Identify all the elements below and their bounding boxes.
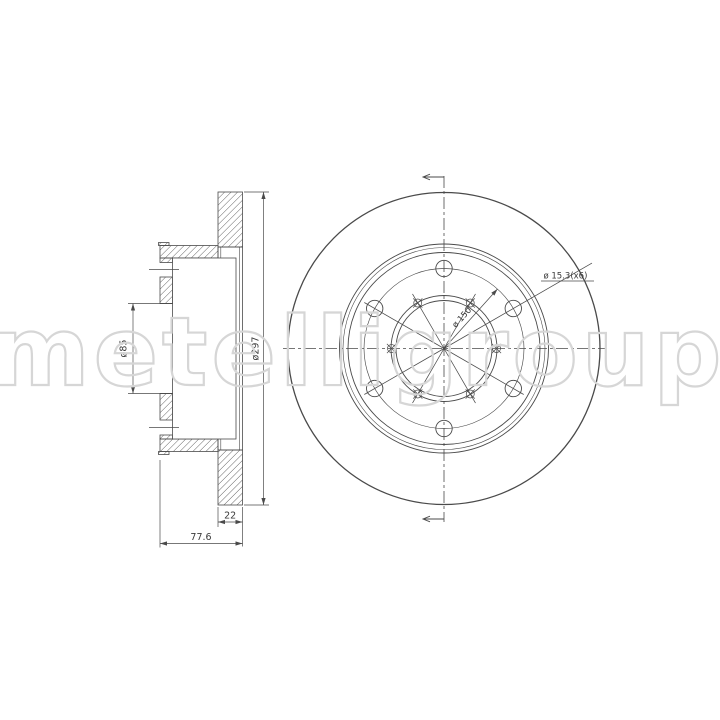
dim-arrow-icon	[261, 498, 265, 505]
dim-arrow-icon	[236, 541, 243, 545]
bolt-hole-diameter-label: ø 15.3(x6)	[544, 272, 588, 282]
brake-disc-technical-drawing: ø85 ø297 22 77.6	[0, 0, 720, 720]
drawing-svg: ø85 ø297 22 77.6	[0, 0, 720, 720]
dim-arrow-icon	[236, 520, 243, 524]
thickness-dim-label: 22	[224, 511, 236, 522]
dim-arrow-icon	[261, 192, 265, 199]
bolt-hole-callout: ø 15.3(x6)	[541, 272, 594, 282]
overall-width-dim-label: 77.6	[190, 532, 211, 543]
dim-thickness: 22	[218, 507, 243, 547]
dim-arrow-icon	[160, 541, 167, 545]
watermark-text: metelligroup	[0, 298, 720, 408]
